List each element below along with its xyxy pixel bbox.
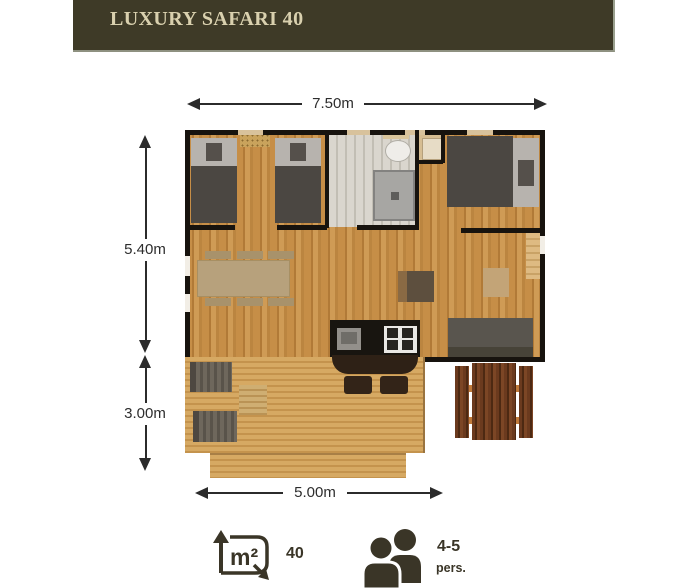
window	[185, 294, 190, 312]
dining-chair	[237, 298, 263, 306]
capacity-value: 4-5	[437, 538, 460, 556]
bench-right-wall	[526, 233, 541, 279]
header-bar: LUXURY SAFARI 40	[73, 0, 615, 52]
deck-side-table	[239, 385, 267, 415]
bed-duvet	[191, 166, 237, 223]
pillow-accent	[290, 143, 306, 161]
closet-shelf	[422, 138, 442, 160]
dimension-label-terrace-width: 5.00m	[283, 482, 347, 504]
wall-interior	[415, 130, 419, 230]
window	[238, 130, 263, 135]
bar-stool	[344, 376, 372, 394]
sofa	[448, 318, 533, 358]
bed-duvet	[275, 166, 321, 223]
picnic-connector	[516, 417, 519, 424]
floorplan-main-unit	[185, 130, 545, 362]
dining-chair	[268, 251, 294, 259]
dimension-label-terrace-depth: 3.00m	[113, 403, 177, 425]
deck-chair	[193, 411, 237, 442]
arrow-down-icon	[139, 340, 151, 353]
side-chair	[398, 271, 434, 302]
area-unit-label: m²	[230, 544, 258, 570]
toilet	[385, 140, 411, 162]
outdoor-bar-counter	[332, 355, 418, 374]
dining-table	[197, 260, 290, 297]
wall-interior	[417, 160, 443, 164]
area-value: 40	[286, 545, 304, 563]
dining-chair	[205, 251, 231, 259]
picnic-connector	[469, 385, 472, 392]
bed-pillow	[191, 138, 237, 166]
burner	[402, 328, 413, 338]
square-meters-icon: m²	[208, 528, 280, 586]
wall-left	[185, 130, 190, 362]
bed-single-right	[275, 138, 321, 223]
window	[185, 256, 190, 276]
coffee-table	[483, 268, 509, 297]
dimension-label-main-depth: 5.40m	[113, 239, 177, 261]
pillow-accent	[518, 160, 534, 186]
bed-double-duvet	[447, 136, 513, 207]
bar-stool	[380, 376, 408, 394]
page-title: LUXURY SAFARI 40	[110, 8, 303, 31]
bed-pillow	[275, 138, 321, 166]
wall-interior	[277, 225, 327, 230]
arrow-right-icon	[430, 487, 443, 499]
shower-unit	[373, 170, 415, 221]
wall-interior	[461, 228, 545, 233]
picnic-connector	[469, 417, 472, 424]
burner	[387, 340, 398, 350]
picnic-connector	[516, 385, 519, 392]
rug	[240, 133, 270, 147]
window	[540, 236, 545, 254]
picnic-bench-left	[455, 366, 469, 438]
picnic-table-top	[472, 363, 516, 440]
capacity-unit-label: pers.	[436, 561, 466, 575]
dimension-line	[198, 103, 535, 105]
dining-chair	[205, 298, 231, 306]
pillow-accent	[206, 143, 222, 161]
dimension-label-top: 7.50m	[302, 93, 364, 115]
wall-interior	[185, 225, 235, 230]
kitchen-sink	[337, 328, 361, 350]
burner	[387, 328, 398, 338]
bed-double-pillow	[513, 138, 539, 207]
wall-interior	[325, 130, 329, 228]
wall-interior	[357, 225, 417, 230]
floorplan-page: LUXURY SAFARI 40 7.50m 5.40m 3.00m 5.00m	[0, 0, 696, 588]
arrow-down-icon	[139, 458, 151, 471]
deck-chair	[190, 362, 232, 392]
bed-single-left	[191, 138, 237, 223]
burner	[402, 340, 413, 350]
closet-floor	[419, 135, 443, 162]
window	[467, 130, 493, 135]
stove	[384, 326, 417, 353]
dining-chair	[268, 298, 294, 306]
sink-basin	[341, 332, 357, 344]
wall-interior	[441, 130, 445, 163]
window	[347, 130, 370, 135]
sofa-seat	[448, 318, 533, 347]
people-icon	[360, 527, 432, 588]
shower-handle	[391, 192, 399, 200]
terrace-step	[210, 453, 406, 478]
dining-chair	[237, 251, 263, 259]
picnic-bench-right	[519, 366, 533, 438]
arrow-right-icon	[534, 98, 547, 110]
